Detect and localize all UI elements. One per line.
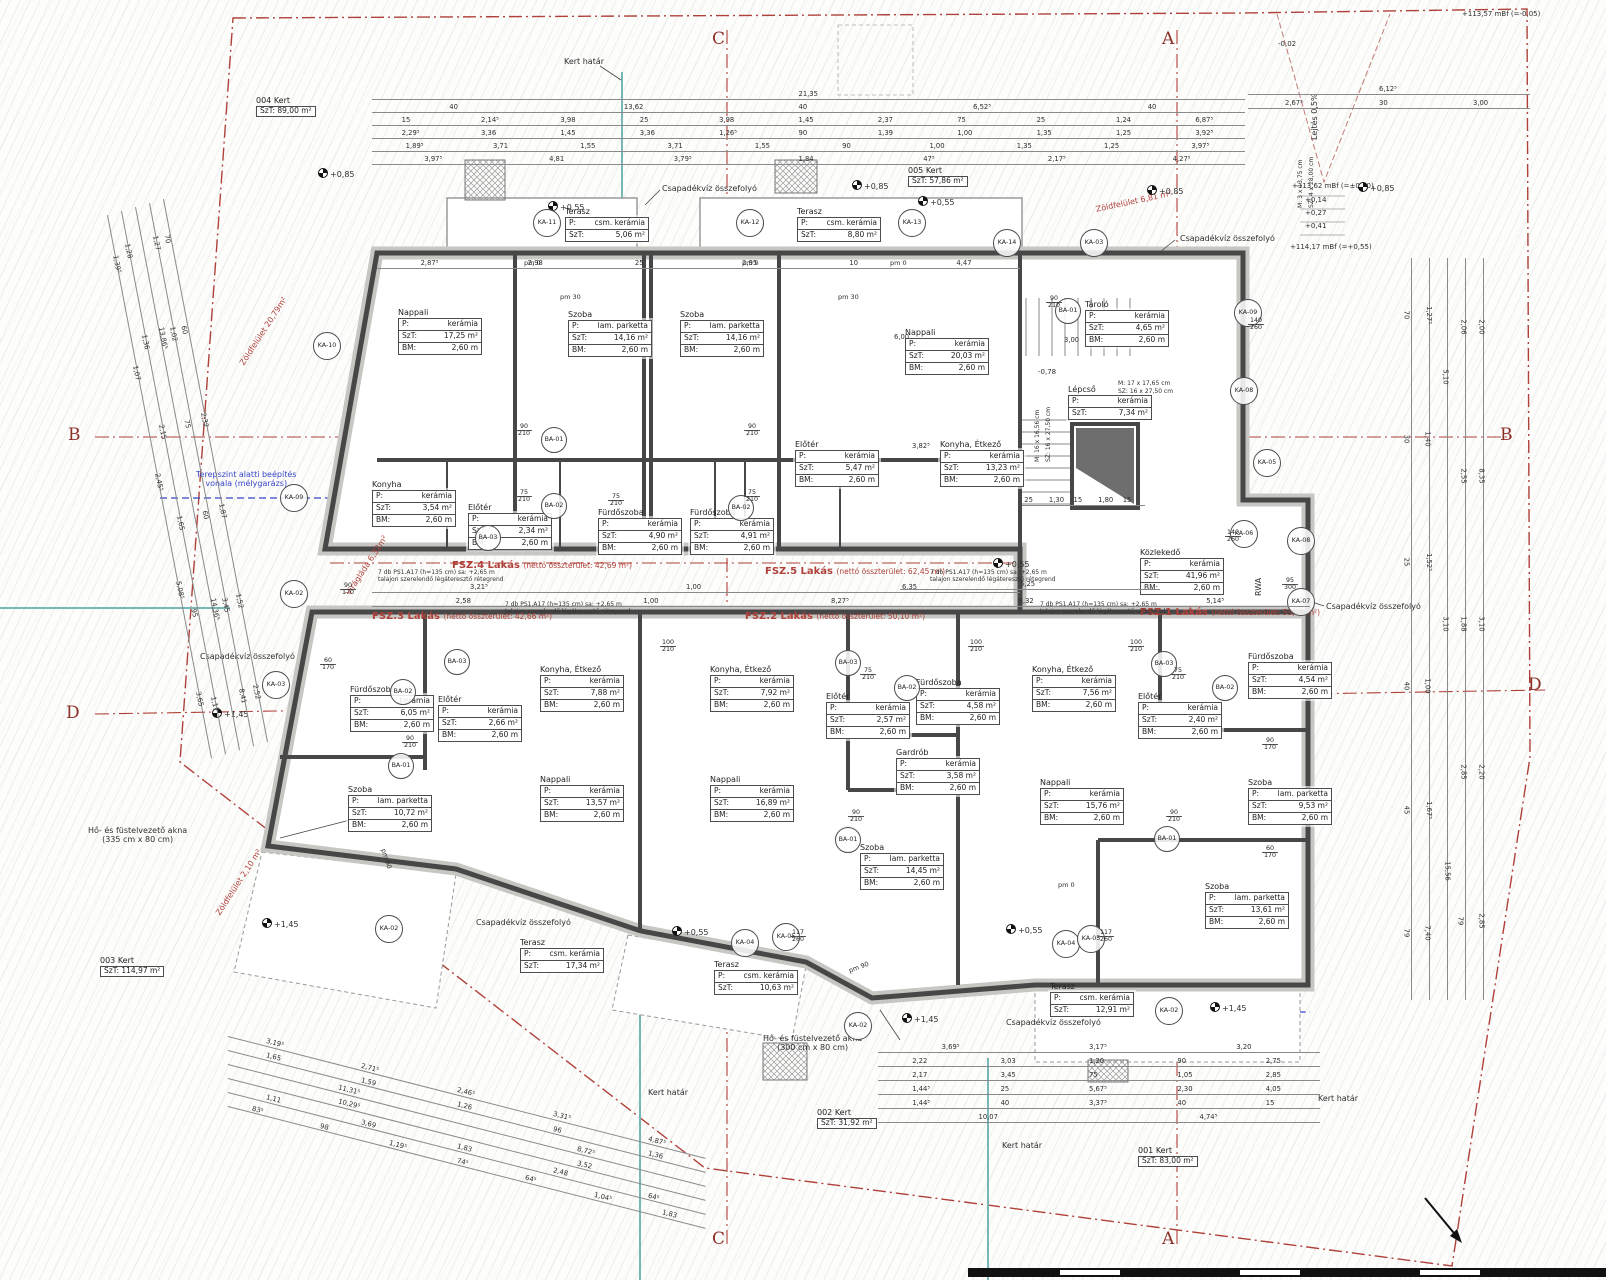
dimension-line — [900, 589, 1160, 590]
annotation: +0,27 — [1305, 209, 1326, 217]
room-label: NappaliP:kerámiaSzT:15,76 m²BM:2,60 m — [1040, 778, 1124, 825]
dimension-line — [878, 1108, 1320, 1109]
dimension-value: 79 — [1456, 916, 1464, 925]
annotation: M: 17 x 17,65 cm — [1118, 381, 1170, 388]
dimension-value: 1,80 — [1098, 496, 1113, 504]
ka-marker: KA-03 — [262, 671, 290, 699]
door-size: 75210 — [516, 490, 532, 504]
door-size: 90210 — [1046, 296, 1062, 310]
dimension-value: 5,67⁵ — [1089, 1085, 1107, 1093]
dimension-value: 4,27⁵ — [1173, 155, 1191, 163]
door-size: 90210 — [744, 424, 760, 438]
dimension-line — [372, 138, 1245, 139]
dimension-value: 90 — [842, 142, 851, 150]
benchmark-icon — [1006, 924, 1016, 934]
ba-marker: BA-02 — [1212, 675, 1238, 701]
dimension-value: 90 — [799, 129, 808, 137]
benchmark-icon — [918, 196, 928, 206]
dimension-value: 1,30 — [1049, 496, 1064, 504]
door-size: 75210 — [744, 490, 760, 504]
dimension-value: 25 — [640, 116, 649, 124]
dimension-value: 1,00 — [929, 142, 944, 150]
annotation: +0,41 — [1305, 222, 1326, 230]
dimension-line — [1022, 505, 1145, 506]
annotation: +1,45 — [262, 918, 299, 929]
dimension-value: 1,45 — [560, 129, 575, 137]
dimension-line — [1248, 108, 1530, 109]
dimension-value: 3,36 — [640, 129, 655, 137]
dimension-value: 40 — [1177, 1099, 1186, 1107]
ba-marker: BA-02 — [541, 493, 567, 519]
annotation: +0,85 — [1358, 182, 1395, 193]
room-label: NappaliP:kerámiaSzT:17,25 m²BM:2,60 m — [398, 308, 482, 355]
dimension-value: 90 — [1177, 1057, 1186, 1065]
annotation: M: 16 x 16,56 cm — [1035, 410, 1042, 462]
dimension-value: 1,00 — [957, 129, 972, 137]
room-label: SzobaP:lam. parkettaSzT:14,45 m²BM:2,60 … — [860, 843, 944, 890]
annotation: Hő- és füstelvezető akna(335 cm x 80 cm) — [88, 826, 187, 844]
dimension-value: 2,17⁵ — [1048, 155, 1066, 163]
dimension-value: 1,24 — [1116, 116, 1131, 124]
ba-marker: BA-02 — [390, 679, 416, 705]
garden-label: 003 KertSzT: 114,97 m² — [100, 956, 164, 977]
dimension-value: 1,05 — [1177, 1071, 1192, 1079]
dimension-value: 1,40 — [1424, 431, 1432, 446]
dimension-value: 2,30 — [1177, 1085, 1192, 1093]
benchmark-icon — [318, 168, 328, 178]
dimension-value: 1,67⁵ — [1425, 801, 1433, 819]
window-note: 7 db PS1.A17 (h=135 cm) sa: +2,65 mtalaj… — [1040, 602, 1166, 616]
dimension-line — [372, 606, 1310, 607]
dimension-value: 1,00 — [686, 583, 701, 591]
dimension-value: 30 — [1402, 434, 1410, 443]
dimension-value: 45 — [1402, 805, 1410, 814]
annotation: pm 30 — [838, 294, 859, 301]
ba-marker: BA-01 — [1154, 826, 1180, 852]
door-size: 100210 — [968, 640, 984, 654]
terrace-label: TeraszP:csm. kerámiaSzT:8,80 m² — [797, 207, 881, 242]
dimension-value: 1,26⁵ — [719, 129, 737, 137]
annotation: -0,02 — [1278, 40, 1296, 48]
dimension-line — [372, 164, 1245, 165]
dimension-value: 40 — [449, 103, 458, 111]
section-letter-a: A — [1162, 1230, 1174, 1250]
dimension-value: 3,92⁵ — [1195, 129, 1213, 137]
annotation: +114,17 mBf (=+0,55) — [1290, 243, 1372, 251]
dimension-line — [372, 592, 1020, 593]
dimension-line — [1411, 258, 1412, 1000]
annotation: 3,00 — [1064, 337, 1079, 345]
ba-marker: BA-03 — [835, 650, 861, 676]
dimension-line — [1429, 258, 1430, 1000]
dimension-value: 8,35 — [1478, 468, 1486, 483]
dimension-value: 2,85 — [1478, 913, 1486, 928]
dimension-value: 2,85 — [1266, 1071, 1281, 1079]
dimension-line — [372, 99, 1245, 100]
dimension-value: 2,17 — [912, 1071, 927, 1079]
dimension-value: 13,62 — [624, 103, 643, 111]
dimension-value: 3,17⁵ — [1089, 1043, 1107, 1051]
ka-marker: KA-07 — [1287, 588, 1315, 616]
dimension-value: 3,71 — [493, 142, 508, 150]
dimension-value: 2,14⁵ — [481, 116, 499, 124]
door-size: 90170 — [1262, 738, 1278, 752]
dimension-value: 15,56 — [1444, 862, 1452, 881]
dimension-value: 1,39 — [878, 129, 893, 137]
room-label: TárolóP:kerámiaSzT:4,65 m²BM:2,60 m — [1085, 300, 1169, 347]
door-size: 117260 — [1098, 930, 1114, 944]
ka-marker: KA-02 — [280, 580, 308, 608]
dimension-value: 75 — [1089, 1071, 1098, 1079]
dimension-value: 3,97⁵ — [1191, 142, 1209, 150]
door-size: 140260 — [1225, 530, 1241, 544]
annotation: Lejtés 0,5% — [1310, 93, 1319, 140]
dimension-value: 79 — [1402, 929, 1410, 938]
dimension-value: 10 — [849, 259, 858, 267]
annotation: SZ: 16 x 27,50 cm — [1118, 389, 1173, 396]
dimension-value: 3,79⁵ — [674, 155, 692, 163]
ka-marker: KA-14 — [993, 229, 1021, 257]
ka-marker: KA-03 — [1080, 229, 1108, 257]
dimension-value: 4,05 — [1266, 1085, 1281, 1093]
dimension-value: 3,45 — [1001, 1071, 1016, 1079]
ba-marker: BA-03 — [444, 649, 470, 675]
dimension-value: 3,03 — [1001, 1057, 1016, 1065]
direction-arrow-icon — [1425, 1198, 1462, 1243]
room-label: FürdőszobaP:kerámiaSzT:4,90 m²BM:2,60 m — [598, 508, 682, 555]
benchmark-icon — [1210, 1002, 1220, 1012]
room-label: ElőtérP:kerámiaSzT:2,66 m²BM:2,60 m — [438, 695, 522, 742]
dimension-value: 2,87⁵ — [421, 259, 439, 267]
room-label: ElőtérP:kerámiaSzT:2,57 m²BM:2,60 m — [826, 692, 910, 739]
dimension-value: 2,58 — [456, 597, 471, 605]
dimension-value: 25 — [1402, 558, 1410, 567]
door-size: 100210 — [660, 640, 676, 654]
door-size: 75210 — [860, 668, 876, 682]
ka-marker: KA-02 — [1155, 997, 1183, 1025]
dimension-line — [878, 1122, 1320, 1123]
room-label: Konyha, ÉtkezőP:kerámiaSzT:7,88 m²BM:2,6… — [540, 665, 624, 712]
annotation: -0,78 — [1038, 368, 1056, 376]
dimension-value: 1,84 — [799, 155, 814, 163]
annotation: +1,45 — [1210, 1002, 1247, 1013]
dimension-value: 3,00 — [1473, 99, 1488, 107]
room-label: SzobaP:lam. parkettaSzT:14,16 m²BM:2,60 … — [568, 310, 652, 357]
annotation: pm 0 — [890, 260, 907, 267]
annotation: Terepszint alatti beépítésvonala (mélyga… — [196, 470, 296, 488]
door-size: 117260 — [790, 930, 806, 944]
dimension-value: 40 — [1001, 1099, 1010, 1107]
dimension-value: 75 — [957, 116, 966, 124]
dimension-value: 3,71 — [668, 142, 683, 150]
dimension-value: 40 — [799, 103, 808, 111]
annotation: Csapadékvíz összefolyó — [200, 652, 295, 661]
ba-marker: BA-02 — [894, 675, 920, 701]
door-size: 90210 — [848, 810, 864, 824]
dimension-value: 1,00 — [643, 597, 658, 605]
annotation: +0,55 — [1006, 924, 1043, 935]
annotation: +0,55 — [672, 926, 709, 937]
apartment-label: FSZ.5 Lakás (nettó összterület: 62,45 m²… — [765, 566, 945, 578]
ka-marker: KA-04 — [731, 929, 759, 957]
dimension-value: 3,36 — [481, 129, 496, 137]
room-label: NappaliP:kerámiaSzT:20,03 m²BM:2,60 m — [905, 328, 989, 375]
dimension-value: 1,45 — [799, 116, 814, 124]
dimension-value: 2,00 — [1478, 320, 1486, 335]
dimension-value: 40 — [1148, 103, 1157, 111]
ka-marker: KA-12 — [736, 209, 764, 237]
dimension-value: 2,06 — [1460, 320, 1468, 335]
door-size: 140260 — [1248, 318, 1264, 332]
door-size: 60170 — [320, 658, 336, 672]
section-letter-b: B — [68, 426, 81, 446]
scale-bar — [968, 1268, 1606, 1277]
dimension-value: 3,69⁵ — [942, 1043, 960, 1051]
apartment-label: FSZ.2 Lakás (nettó összterület: 50,10 m²… — [745, 611, 925, 623]
dimension-value: 95 — [190, 608, 199, 618]
dimension-value: 1,20 — [1089, 1057, 1104, 1065]
annotation: Hő- és füstelvezető akna(300 cm x 80 cm) — [763, 1034, 862, 1052]
dimension-line — [372, 151, 1245, 152]
door-size: 90210 — [1166, 810, 1182, 824]
dimension-value: 2,20 — [1478, 765, 1486, 780]
ba-marker: BA-01 — [541, 427, 567, 453]
dimension-value: 5,14⁵ — [1206, 597, 1224, 605]
dimension-line — [377, 268, 1020, 269]
room-label: Konyha, ÉtkezőP:kerámiaSzT:7,56 m²BM:2,6… — [1032, 665, 1116, 712]
annotation: pm 0 — [1058, 882, 1075, 889]
dimension-value: 1,55 — [580, 142, 595, 150]
benchmark-icon — [993, 558, 1003, 568]
dimension-value: 15 — [1123, 496, 1132, 504]
dimension-value: 8,27⁵ — [831, 597, 849, 605]
dimension-value: 1,35 — [1017, 142, 1032, 150]
room-label: KonyhaP:kerámiaSzT:3,54 m²BM:2,60 m — [372, 480, 456, 527]
ka-marker: KA-04 — [1052, 930, 1080, 958]
section-letter-a: A — [1162, 30, 1174, 50]
dimension-value: 1,00 — [1424, 678, 1432, 693]
annotation: Csapadékvíz összefolyó — [1326, 602, 1421, 611]
dimension-value: 30 — [1379, 99, 1388, 107]
annotation: 6,00 — [894, 334, 909, 342]
garden-label: 004 KertSzT: 89,00 m² — [256, 96, 316, 117]
dimension-line — [878, 1094, 1320, 1095]
dimension-value: 1,25 — [1104, 142, 1119, 150]
annotation: SZ: 16 x 27,50 cm — [1046, 407, 1053, 462]
ba-marker: BA-01 — [388, 753, 414, 779]
ka-marker: KA-10 — [313, 332, 341, 360]
room-label: NappaliP:kerámiaSzT:16,89 m²BM:2,60 m — [710, 775, 794, 822]
dimension-value: 40 — [1402, 682, 1410, 691]
dimension-line — [1248, 94, 1530, 95]
room-label: SzobaP:lam. parkettaSzT:13,61 m²BM:2,60 … — [1205, 882, 1289, 929]
dimension-value: 1,89⁵ — [406, 142, 424, 150]
dimension-value: 4,47 — [956, 259, 971, 267]
annotation: Kert határ — [1002, 1141, 1042, 1150]
door-size: 90210 — [402, 736, 418, 750]
annotation: +0,85 — [852, 180, 889, 191]
door-size: 100210 — [1128, 640, 1144, 654]
dimension-value: 5,25 — [1020, 580, 1035, 588]
dimension-value: 1,88 — [1460, 616, 1468, 631]
ka-marker: KA-08 — [1287, 527, 1315, 555]
annotation: +1,45 — [902, 1013, 939, 1024]
dimension-value: 3,37⁵ — [1089, 1099, 1107, 1107]
dimension-value: 10,07 — [979, 1113, 998, 1121]
window-note: 7 db PS1.A17 (h=135 cm) sa: +2,65 mtalaj… — [930, 570, 1056, 584]
dimension-value: 70 — [162, 234, 171, 244]
benchmark-icon — [262, 918, 272, 928]
section-letter-c: C — [712, 30, 725, 50]
dimension-value: 4,81 — [549, 155, 564, 163]
window-note: 7 db PS1.A17 (h=135 cm) sa: +2,65 mtalaj… — [505, 602, 631, 616]
annotation: +0,55 — [918, 196, 955, 207]
dimension-line — [878, 1080, 1320, 1081]
ka-marker: KA-13 — [898, 209, 926, 237]
annotation: RWA — [1254, 578, 1263, 596]
dimension-line — [878, 1052, 1320, 1053]
dimension-value: 5,10 — [1442, 369, 1450, 384]
annotation: pm 30 — [560, 294, 581, 301]
dimension-value: 25 — [1037, 116, 1046, 124]
benchmark-icon — [852, 180, 862, 190]
garden-label: 002 KertSzT: 31,92 m² — [817, 1108, 877, 1129]
dimension-value: 2,75 — [1266, 1057, 1281, 1065]
ka-marker: KA-09 — [280, 484, 308, 512]
door-size: 75210 — [608, 494, 624, 508]
floor-plan-sheet: NappaliP:kerámiaSzT:17,25 m²BM:2,60 mSzo… — [0, 0, 1606, 1280]
room-label: ElőtérP:kerámiaSzT:5,47 m²BM:2,60 m — [795, 440, 879, 487]
dimension-value: 4,74⁵ — [1200, 1113, 1218, 1121]
dimension-value: 2,22 — [912, 1057, 927, 1065]
dimension-value: 3,97⁵ — [424, 155, 442, 163]
room-label: SzobaP:lam. parkettaSzT:9,53 m²BM:2,60 m — [1248, 778, 1332, 825]
annotation: 3,82⁵ — [912, 443, 930, 451]
dimension-value: 15 — [1074, 496, 1083, 504]
dimension-value: 21,35 — [799, 90, 818, 98]
dimension-value: 15 — [402, 116, 411, 124]
benchmark-icon — [1147, 185, 1157, 195]
dimension-value: 1,25 — [1116, 129, 1131, 137]
annotation: +0,55 — [993, 558, 1030, 569]
annotation: +0,14 — [1305, 196, 1326, 204]
dimension-value: 3,10 — [1478, 616, 1486, 631]
dimension-value: 2,85 — [1460, 765, 1468, 780]
dimension-value: 2,29⁵ — [402, 129, 420, 137]
dimension-value: 9,32 — [1019, 597, 1034, 605]
ka-marker: KA-11 — [533, 209, 561, 237]
benchmark-icon — [1358, 182, 1368, 192]
dimension-line — [372, 112, 1245, 113]
terrace-label: TeraszP:csm. kerámiaSzT:12,91 m² — [1050, 982, 1134, 1017]
door-size: 60170 — [1262, 846, 1278, 860]
dimension-value: 2,55 — [1460, 468, 1468, 483]
dimension-value: 25 — [1001, 1085, 1010, 1093]
section-letter-d: D — [1528, 676, 1542, 696]
dimension-value: 6,52⁵ — [973, 103, 991, 111]
section-letter-d: D — [66, 704, 80, 724]
terrace-label: TeraszP:csm. kerámiaSzT:5,06 m² — [565, 207, 649, 242]
window-note: 7 db PS1.A17 (h=135 cm) sa: +2,65 mtalaj… — [378, 570, 504, 584]
garden-label: 005 KertSzT: 57,86 m² — [908, 166, 968, 187]
annotation: Csapadékvíz összefolyó — [662, 184, 757, 193]
benchmark-icon — [902, 1013, 912, 1023]
door-size: 95300 — [1282, 578, 1298, 592]
room-label: Konyha, ÉtkezőP:kerámiaSzT:7,92 m²BM:2,6… — [710, 665, 794, 712]
section-letter-b: B — [1500, 426, 1513, 446]
terrace-label: TeraszP:csm. kerámiaSzT:10,63 m² — [714, 960, 798, 995]
dimension-value: 6,12⁵ — [1379, 85, 1397, 93]
dimension-value: 3,98 — [560, 116, 575, 124]
dimension-value: 1,55 — [755, 142, 770, 150]
ka-marker: KA-02 — [844, 1012, 872, 1040]
dimension-value: 2,37 — [878, 116, 893, 124]
terrace-label: TeraszP:csm. kerámiaSzT:17,34 m² — [520, 938, 604, 973]
dimension-value: 60 — [180, 325, 189, 335]
dimension-value: 25 — [1024, 496, 1033, 504]
dimension-value: 60 — [200, 510, 209, 520]
dimension-value: 1,52⁵ — [1425, 553, 1433, 571]
dimension-value: 6,87⁵ — [1195, 116, 1213, 124]
room-label: SzobaP:lam. parkettaSzT:14,16 m²BM:2,60 … — [680, 310, 764, 357]
dimension-value: 2,95 — [742, 259, 757, 267]
annotation: Csapadékvíz összefolyó — [476, 918, 571, 927]
dimension-value: 47⁵ — [923, 155, 934, 163]
dimension-value: 3,21⁵ — [470, 583, 488, 591]
annotation: Csapadékvíz összefolyó — [1180, 234, 1275, 243]
room-label: NappaliP:kerámiaSzT:13,57 m²BM:2,60 m — [540, 775, 624, 822]
annotation: Csapadékvíz összefolyó — [1006, 1018, 1101, 1027]
annotation: +0,85 — [1147, 185, 1184, 196]
annotation: Kert határ — [1318, 1094, 1358, 1103]
dimension-value: 25 — [635, 259, 644, 267]
door-size: 75210 — [1170, 668, 1186, 682]
ka-marker: KA-02 — [375, 915, 403, 943]
ba-marker: BA-01 — [835, 827, 861, 853]
dimension-value: 3,10 — [1442, 616, 1450, 631]
dimension-value: 1,35 — [1037, 129, 1052, 137]
dimension-line — [372, 125, 1245, 126]
ka-marker: KA-08 — [1230, 377, 1258, 405]
dimension-value: 7,40 — [1424, 926, 1432, 941]
door-size: 90210 — [516, 424, 532, 438]
annotation: +113,57 mBf (=-0,05) — [1462, 10, 1540, 18]
dimension-value: 2,67⁵ — [1285, 99, 1303, 107]
garden-label: 001 KertSzT: 83,00 m² — [1138, 1146, 1198, 1167]
room-label: ElőtérP:kerámiaSzT:2,40 m²BM:2,60 m — [1138, 692, 1222, 739]
room-label: Konyha, ÉtkezőP:kerámiaSzT:13,23 m²BM:2,… — [940, 440, 1024, 487]
ka-marker: KA-05 — [1253, 449, 1281, 477]
dimension-value: 15 — [1266, 1099, 1275, 1107]
benchmark-icon — [672, 926, 682, 936]
room-label: FürdőszobaP:kerámiaSzT:4,58 m²BM:2,60 m — [916, 678, 1000, 725]
dimension-value: 3,98 — [719, 116, 734, 124]
ba-marker: BA-03 — [475, 525, 501, 551]
dimension-value: 3,20 — [1236, 1043, 1251, 1051]
dimension-value: 1,27⁵ — [1425, 306, 1433, 324]
roof-outline — [838, 25, 913, 95]
annotation: Kert határ — [648, 1088, 688, 1097]
annotation: +0,85 — [318, 168, 355, 179]
dimension-line — [878, 1066, 1320, 1067]
dimension-value: 1,44⁵ — [912, 1099, 930, 1107]
dimension-value: 2,98 — [528, 259, 543, 267]
dimension-value: 70 — [1402, 311, 1410, 320]
section-letter-c: C — [712, 1230, 725, 1250]
door-size: 90170 — [340, 583, 356, 597]
room-label: GardróbP:kerámiaSzT:3,58 m²BM:2,60 m — [896, 748, 980, 795]
dimension-value: 1,44⁵ — [912, 1085, 930, 1093]
